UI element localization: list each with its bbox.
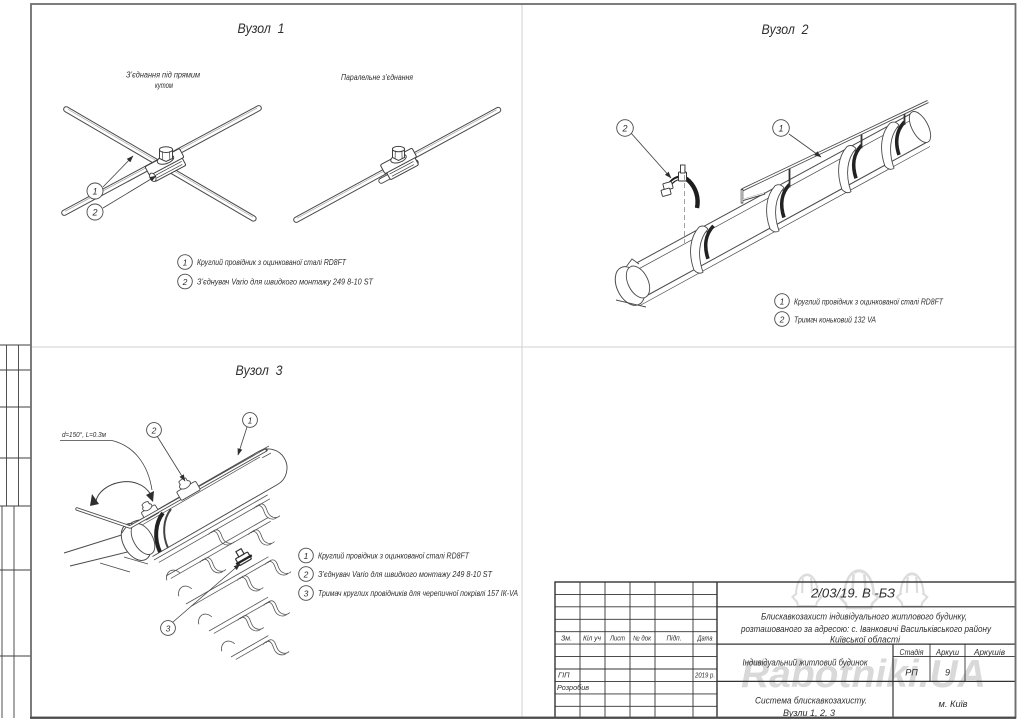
svg-text:Розробив: Розробив [557, 683, 589, 692]
svg-text:Круглий провідник з оцинковано: Круглий провідник з оцинкованої сталі RD… [794, 297, 944, 307]
svg-text:2: 2 [91, 208, 97, 218]
svg-text:Система блискавкозахисту.: Система блискавкозахисту. [755, 696, 867, 707]
svg-text:Аркушів: Аркушів [973, 648, 1005, 657]
svg-text:1: 1 [248, 415, 253, 425]
svg-text:2: 2 [303, 569, 309, 579]
svg-text:2019 р.: 2019 р. [694, 671, 715, 680]
svg-text:Паралельне з’єднання: Паралельне з’єднання [341, 73, 414, 82]
svg-text:РП: РП [905, 668, 918, 678]
svg-text:Тримач коньковий 132 VA: Тримач коньковий 132 VA [794, 315, 876, 325]
svg-text:Київської області: Київської області [830, 635, 901, 645]
svg-text:Індивідуальний житловий будино: Індивідуальний житловий будинок [743, 658, 869, 668]
svg-text:2: 2 [621, 124, 627, 134]
svg-text:Кіл уч: Кіл уч [583, 634, 601, 642]
svg-text:Дата: Дата [697, 635, 713, 642]
svg-text:З’єднання під прямим: З’єднання під прямим [126, 71, 200, 80]
svg-text:Зм.: Зм. [561, 635, 572, 642]
svg-text:1: 1 [92, 187, 97, 197]
svg-text:9: 9 [945, 668, 950, 678]
svg-text:Тримач круглих провідників для: Тримач круглих провідників для черепично… [318, 588, 518, 598]
svg-text:Стадія: Стадія [900, 648, 925, 657]
svg-text:Вузол 2: Вузол 2 [762, 22, 809, 37]
svg-text:З’єднувач Vario для швидкого: З’єднувач Vario для швидкого монтажу 249… [197, 277, 374, 287]
svg-text:d≈150°, L≈0.3м: d≈150°, L≈0.3м [62, 430, 107, 439]
svg-text:2/03/19. В -БЗ: 2/03/19. В -БЗ [810, 586, 895, 601]
svg-text:3: 3 [166, 623, 171, 633]
svg-text:Підп.: Підп. [667, 634, 682, 642]
svg-text:Аркуш: Аркуш [935, 648, 959, 657]
svg-text:1: 1 [183, 257, 188, 267]
svg-text:Вузол 3: Вузол 3 [236, 363, 283, 378]
svg-text:2: 2 [151, 425, 157, 435]
svg-text:кутом: кутом [155, 81, 173, 90]
svg-text:№ док: № док [633, 634, 652, 642]
svg-text:1: 1 [780, 296, 785, 306]
svg-text:З’єднувач Vario для швидкого: З’єднувач Vario для швидкого монтажу 249… [318, 569, 493, 579]
svg-text:розташованого за адресою: с.: розташованого за адресою: с. Іванковичі … [740, 624, 991, 634]
svg-text:Круглий провідник з оцинковано: Круглий провідник з оцинкованої сталі RD… [197, 257, 347, 267]
svg-text:м. Київ: м. Київ [939, 699, 968, 709]
svg-text:Вузол 1: Вузол 1 [238, 21, 285, 36]
svg-text:Круглий провідник з оцинковано: Круглий провідник з оцинкованої сталі RD… [318, 551, 470, 561]
svg-text:ГІП: ГІП [558, 671, 570, 680]
svg-text:1: 1 [304, 551, 309, 561]
svg-text:2: 2 [779, 314, 785, 324]
svg-text:2: 2 [182, 277, 188, 287]
svg-text:Блискавкозахист індивідуально: Блискавкозахист індивідуального житловог… [761, 612, 967, 622]
svg-text:1: 1 [778, 124, 783, 134]
svg-text:Лист: Лист [609, 635, 625, 642]
svg-text:3: 3 [304, 588, 309, 598]
